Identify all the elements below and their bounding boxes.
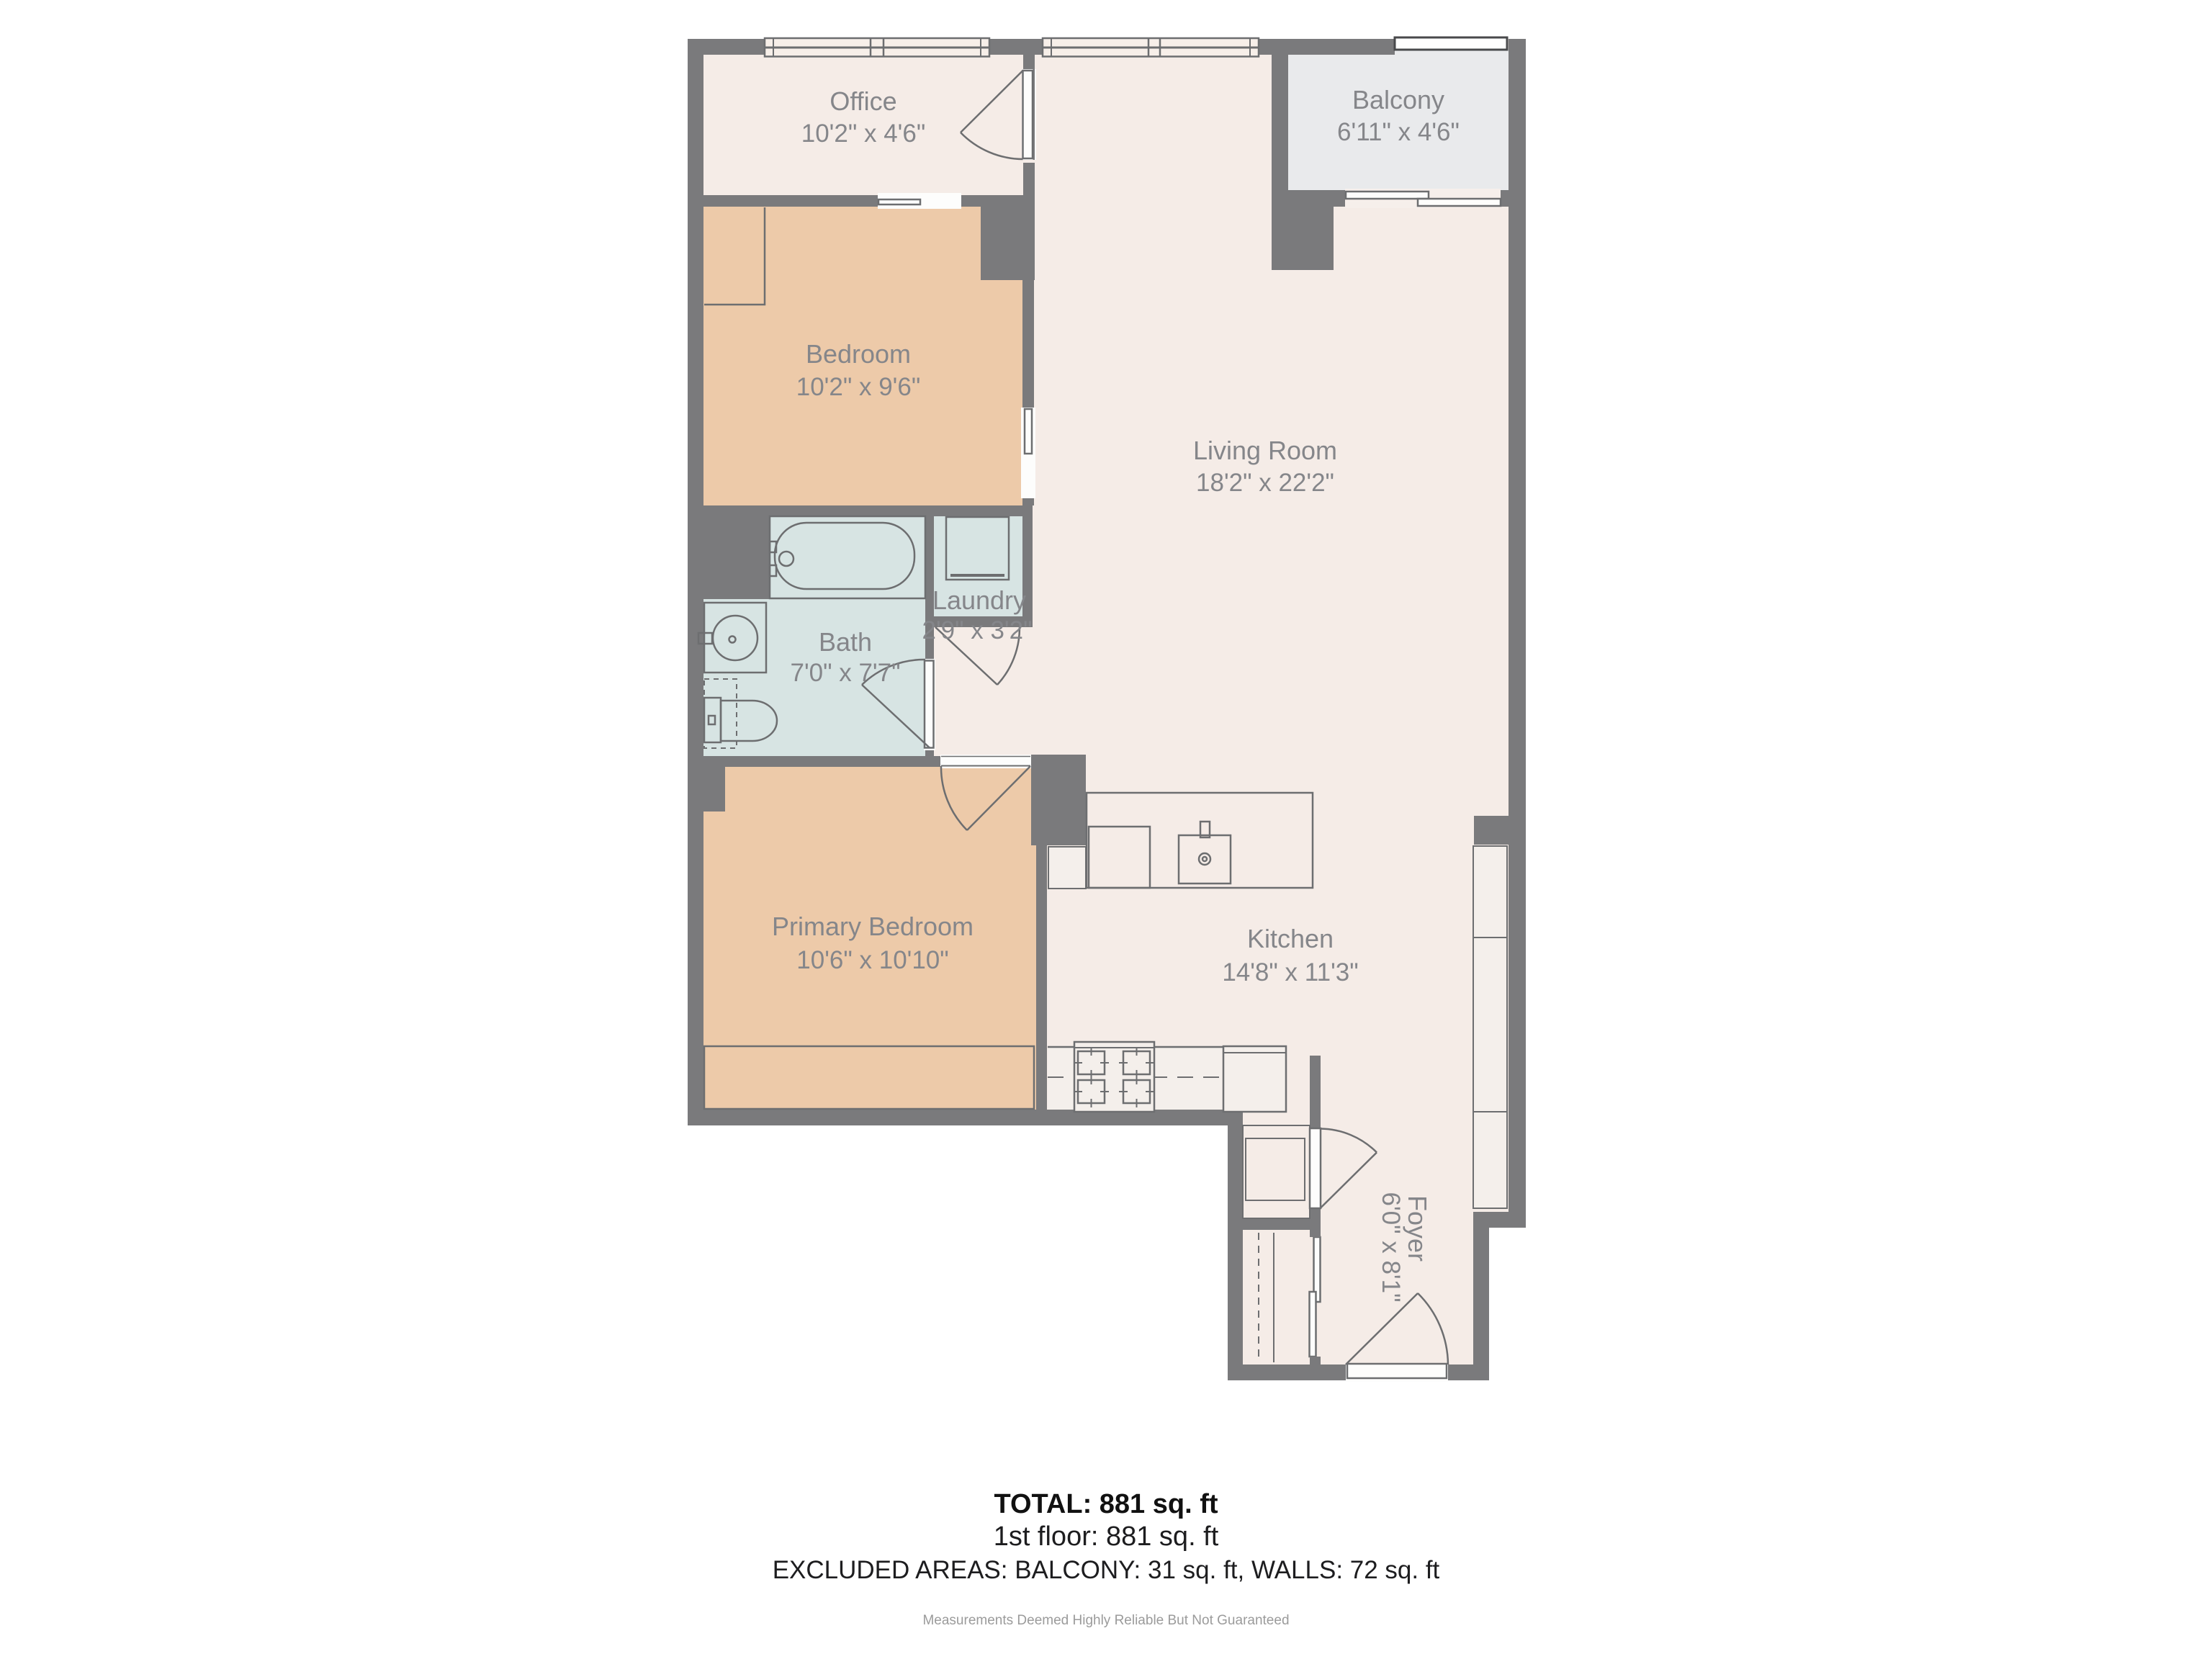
svg-text:Kitchen: Kitchen bbox=[1247, 924, 1334, 953]
svg-text:Laundry: Laundry bbox=[932, 585, 1026, 615]
svg-text:Balcony: Balcony bbox=[1352, 85, 1444, 114]
svg-text:Living Room: Living Room bbox=[1193, 436, 1337, 465]
svg-text:2'9" x 3'2": 2'9" x 3'2" bbox=[922, 616, 1032, 644]
svg-text:6'0" x 8'1": 6'0" x 8'1" bbox=[1377, 1192, 1405, 1302]
svg-text:TOTAL: 881 sq. ft: TOTAL: 881 sq. ft bbox=[994, 1489, 1218, 1519]
svg-text:Measurements Deemed Highly Rel: Measurements Deemed Highly Reliable But … bbox=[922, 1613, 1289, 1628]
svg-text:10'6" x 10'10": 10'6" x 10'10" bbox=[796, 946, 948, 974]
svg-text:Office: Office bbox=[829, 86, 896, 116]
svg-text:EXCLUDED AREAS: BALCONY: 31 sq: EXCLUDED AREAS: BALCONY: 31 sq. ft, WALL… bbox=[773, 1556, 1440, 1584]
svg-text:10'2" x 4'6": 10'2" x 4'6" bbox=[801, 120, 926, 148]
svg-text:Primary Bedroom: Primary Bedroom bbox=[772, 912, 974, 941]
svg-text:18'2" x 22'2": 18'2" x 22'2" bbox=[1196, 469, 1334, 497]
svg-text:6'11" x 4'6": 6'11" x 4'6" bbox=[1337, 118, 1460, 146]
svg-text:Bedroom: Bedroom bbox=[806, 339, 911, 369]
svg-text:10'2" x 9'6": 10'2" x 9'6" bbox=[796, 373, 921, 401]
svg-text:7'0" x 7'7": 7'0" x 7'7" bbox=[790, 659, 900, 687]
svg-text:14'8" x 11'3": 14'8" x 11'3" bbox=[1222, 958, 1358, 986]
svg-text:1st floor: 881 sq. ft: 1st floor: 881 sq. ft bbox=[994, 1521, 1219, 1552]
svg-text:Foyer: Foyer bbox=[1403, 1195, 1432, 1262]
svg-text:Bath: Bath bbox=[819, 627, 872, 657]
